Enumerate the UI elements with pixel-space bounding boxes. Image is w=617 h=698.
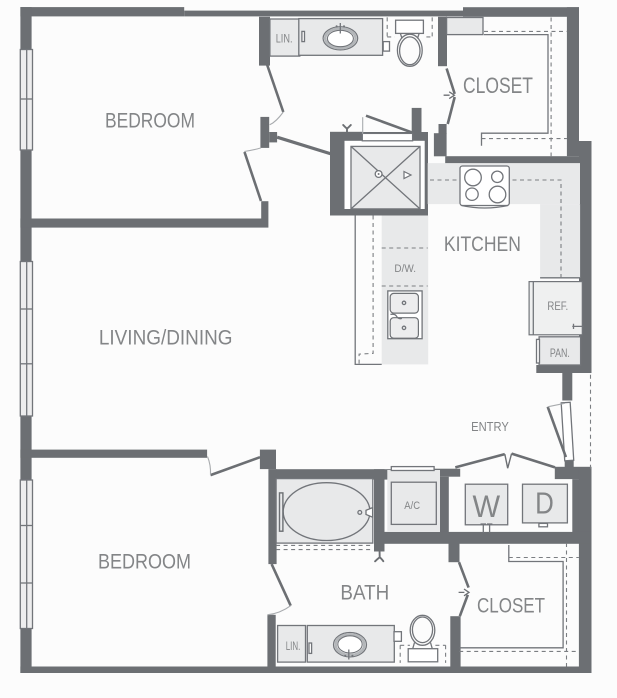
svg-text:REF.: REF. (547, 299, 568, 313)
svg-text:ENTRY: ENTRY (471, 420, 509, 434)
svg-text:LIN.: LIN. (286, 641, 301, 653)
svg-text:D: D (535, 485, 554, 520)
svg-text:CLOSET: CLOSET (463, 73, 533, 98)
svg-text:W: W (473, 488, 501, 524)
svg-text:A/C: A/C (404, 500, 420, 512)
svg-text:BEDROOM: BEDROOM (105, 110, 195, 133)
svg-text:LIN.: LIN. (276, 31, 293, 45)
svg-text:BEDROOM: BEDROOM (98, 550, 191, 573)
svg-text:BATH: BATH (340, 580, 389, 604)
svg-text:LIVING/DINING: LIVING/DINING (99, 325, 233, 349)
svg-text:PAN.: PAN. (550, 346, 570, 360)
svg-text:KITCHEN: KITCHEN (444, 233, 521, 256)
svg-text:D/W.: D/W. (394, 263, 416, 275)
svg-text:CLOSET: CLOSET (477, 594, 545, 618)
